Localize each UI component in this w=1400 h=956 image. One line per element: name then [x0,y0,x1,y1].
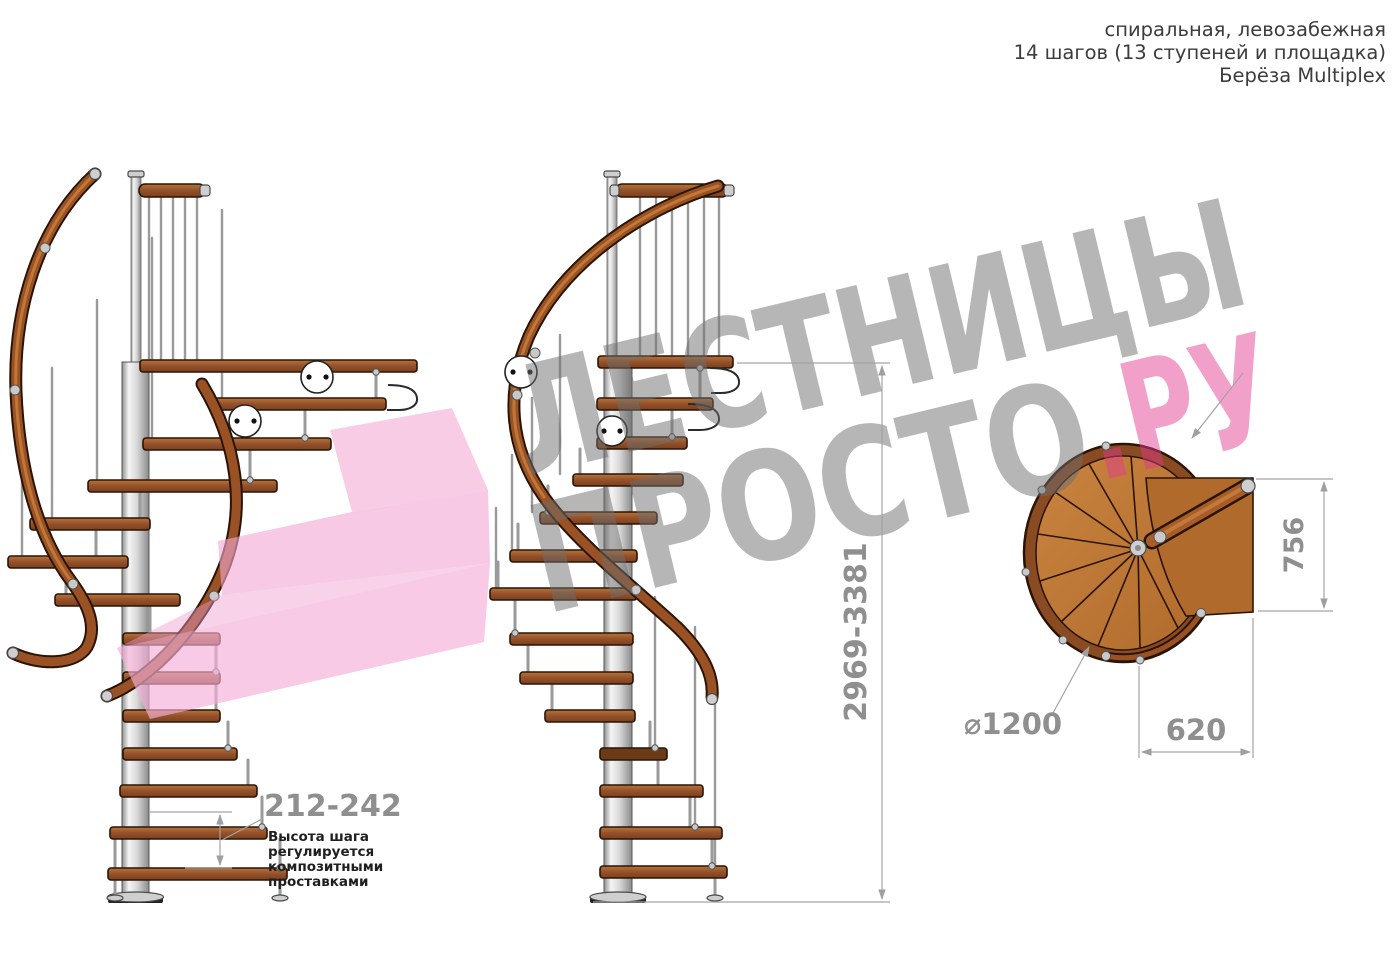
handrail-end-cap [707,694,718,705]
staircase-drawing-page: ЛЕСТНИЦЫ ПРОСТО.РУ 2969-3381 756 620 [0,0,1400,956]
rim-rail-cap [1197,609,1206,618]
dim-step-height-label: 212-242 [264,789,402,824]
tread [108,868,287,880]
dim-landing-width: 756 [1256,479,1333,611]
handrail-sleeve [10,385,20,395]
pole-top-cap [604,171,620,177]
tread [600,866,727,878]
fence-top-rail [139,184,205,197]
dim-diameter-label: ⌀1200 [964,707,1062,741]
dim-total-height-label: 2969-3381 [839,542,874,721]
tread [123,748,237,760]
dim-landing-width-label: 756 [1279,517,1310,573]
handrail-end-cap [8,648,19,659]
handrail-outer [8,169,101,662]
fence-rail-end-cap [200,185,210,196]
fence-rail-end-cap [610,185,619,196]
staircase-technical-diagram: ЛЕСТНИЦЫ ПРОСТО.РУ 2969-3381 756 620 [0,0,1400,956]
rim-rail-cap [1102,652,1111,661]
pole-top-cap [128,171,144,177]
spec-material: Берёза Multiplex [1219,64,1386,87]
pole-base-flange [590,892,646,902]
tread [520,672,633,684]
handrail-sleeve [40,243,50,253]
spec-type: спиральная, левозабежная [1105,18,1386,41]
handrail-end-cap [102,691,113,702]
pink-arrow-watermark [117,408,490,719]
baluster-foot [272,895,288,901]
handrail-sleeve [68,579,78,589]
tread-bracket [387,385,417,410]
baluster-foot [707,895,723,901]
tread [545,710,635,722]
tread [120,785,257,797]
baluster-foot [107,895,123,901]
tread [600,827,722,839]
tread [600,785,703,797]
spec-header: спиральная, левозабежная 14 шагов (13 ст… [1014,18,1386,87]
plan-handrail-sleeve [1154,531,1166,543]
center-pole-pipe [131,176,141,366]
fence-balusters [149,197,197,360]
spec-steps: 14 шагов (13 ступеней и площадка) [1014,41,1386,64]
fence-rail-end-cap [724,185,734,196]
step-height-note: Высота шага регулируется композитными пр… [268,829,388,890]
dim-diameter: ⌀1200 [964,647,1089,741]
dim-landing-depth-label: 620 [1166,713,1227,747]
handrail-end-cap [90,169,101,180]
